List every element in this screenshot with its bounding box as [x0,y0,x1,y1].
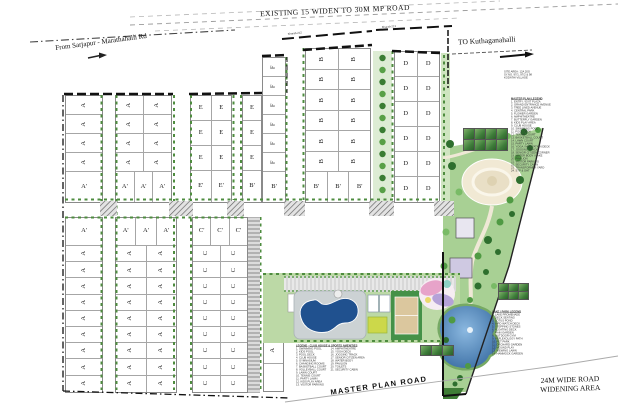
plot-label: A [154,122,161,127]
plot-label: B' [335,184,341,191]
plot-cell: D [395,177,418,202]
plot-label: C [203,349,210,353]
plot-cell: A [66,246,102,261]
plot-label: A [126,141,133,146]
plot-cell: C [193,359,221,374]
plot-cell: B [306,131,339,151]
plot-cell: C [221,359,248,374]
plot-label: F [271,65,278,69]
plot-label: A [81,381,88,386]
plot-cell: B [339,111,371,131]
plot-cell: C' [193,218,211,245]
block-a-amenity-edge: AA [263,285,284,392]
plot-label: E [219,155,223,162]
plot-label: A [81,160,88,165]
plot-cell: A [116,343,147,358]
plot-cell: F [263,153,285,171]
plot-label: B' [314,184,320,191]
block-b: BBBBBBBBBBBBB'B'B' [305,48,371,203]
plot-label: A' [163,228,169,235]
plot-cell: A [66,376,102,392]
plot-cell: F [263,77,285,95]
plot-label: A [154,103,161,108]
plot-label: D [426,86,431,93]
plot-label: A [158,316,165,321]
plot-cell: A [144,134,171,152]
plot-cell: B [339,90,371,110]
plot-label: C' [236,228,242,235]
plot-label: A [127,316,134,321]
plot-label: D [426,61,431,68]
plot-label: C [231,365,238,369]
landscape-photo-thumb [496,139,508,151]
site-notes: SITE AREA: 12A 20GSY.NO. 97/1, 97/2 & 98… [504,70,597,100]
plot-label: E [199,105,203,112]
plot-label: A [154,160,161,165]
plot-label: F [271,103,278,107]
plot-label: E [250,155,254,162]
plot-cell: A [116,262,147,277]
plot-cell: A [147,327,177,342]
plot-cell: B [306,70,339,90]
plot-cell: B [339,70,371,90]
plot-cell: D [395,102,418,126]
plot-label: A [81,251,88,256]
plot-cell: F [263,58,285,76]
plot-cell: A' [157,218,176,245]
plot-label: A [158,284,165,289]
plot-cell: C [193,262,221,277]
plot-cell [264,286,283,311]
plot-cell: A [147,246,177,261]
plot-label: A [81,141,88,146]
block-a-north: AAAAAAAAA'A'A' [115,95,172,203]
plot-cell: E [191,121,212,145]
plot-cell: A [116,153,144,171]
plot-label: A' [143,228,149,235]
plot-cell: A' [116,218,136,245]
plot-cell: C [193,343,221,358]
plot-cell: D [418,102,440,126]
plot-cell: C [193,311,221,326]
plot-cell: B' [349,172,370,202]
plot-label: C [231,300,238,304]
plot-label: A [127,365,134,370]
plot-cell: C' [230,218,247,245]
plot-label: A [270,348,277,353]
plot-label: C [203,300,210,304]
plot-cell: B' [263,172,285,202]
legend-landscape-bottomright: LAKE / PARK LEGEND1. LAKE PROMENADE2. DE… [492,310,595,404]
plot-cell: C [193,278,221,293]
plot-label: A [81,365,88,370]
plot-label: C [231,381,238,385]
block-e-east: EEEB' [242,95,262,203]
plot-cell: A [147,343,177,358]
plot-cell: A [66,343,102,358]
plot-cell: A [66,359,102,374]
plot-label: C [231,251,238,255]
plot-label: B [351,139,358,143]
plot-label: D [403,186,408,193]
plot-label: C' [217,228,223,235]
plot-cell: A' [136,218,156,245]
plot-cell: E' [191,171,212,202]
plot-label: D [403,61,408,68]
plot-cell: E [243,96,261,120]
plot-label: A [127,284,134,289]
plot-label: A [158,381,165,386]
plot-cell: A' [116,172,135,202]
plot-cell: F [263,115,285,133]
plot-cell: A' [135,172,154,202]
plot-cell: B' [328,172,350,202]
legend-item: 21. SECURITY CABIN [331,368,365,371]
plot-cell: A [147,295,177,310]
plot-label: A [81,300,88,305]
legend-item: 24. STP & OHT [511,169,551,172]
plot-cell: A [147,278,177,293]
plot-label: A [126,103,133,108]
plot-label: B [319,77,326,81]
plot-label: A [81,284,88,289]
legend-item: 14. HAMMOCK GARDEN [492,352,523,355]
plot-cell: A [116,376,147,392]
plot-label: A [81,267,88,272]
plot-cell: B [339,131,371,151]
plot-label: E [250,105,254,112]
plot-cell: A [116,96,144,114]
plot-label: A [127,348,134,353]
plot-cell: D [395,52,418,76]
plot-cell: B' [306,172,328,202]
plot-cell: D [418,77,440,101]
plot-label: A [158,300,165,305]
plot-label: C' [199,228,205,235]
plot-label: A [127,300,134,305]
plot-label: C [203,332,210,336]
plot-cell: A [66,311,102,326]
plot-cell: A [147,359,177,374]
plot-cell: C [221,262,248,277]
plot-label: C [231,316,238,320]
plot-cell: A' [153,172,171,202]
plot-cell: A' [66,172,102,202]
plot-label: F [271,141,278,145]
legend-item: 13. VISITOR PARKING [296,383,326,386]
plot-cell: F [263,96,285,114]
plot-label: B [319,57,326,61]
plot-label: A [127,267,134,272]
plot-cell: C [221,327,248,342]
plot-label: C [231,268,238,272]
plot-label: A' [141,184,147,191]
block-d: DDDDDDDDDDDD [394,51,440,203]
plot-label: F [271,160,278,164]
plot-label: B [319,98,326,102]
plot-label: A [158,348,165,353]
plot-label: D [403,111,408,118]
plot-cell: B' [243,171,261,202]
block-a-south: A'A'A'AAAAAAAAAAAAAAAAAA [115,217,177,393]
plot-label: D [403,161,408,168]
plot-label: C [203,381,210,385]
block-c: C'C'C'CCCCCCCCCCCCCCCCCC [192,217,248,393]
plot-label: A [158,365,165,370]
plot-label: C [203,316,210,320]
plot-cell [264,364,283,391]
plot-cell: E [212,146,232,170]
plot-label: D [426,186,431,193]
plot-label: B [351,118,358,122]
plot-cell: D [418,52,440,76]
plot-label: C [231,349,238,353]
block-a-northwest: AAAAA' [65,95,103,203]
plot-cell: A [116,246,147,261]
plot-label: B' [357,184,363,191]
plot-cell: A' [66,218,102,245]
plot-label: B [351,77,358,81]
plot-label: A' [123,228,129,235]
plot-cell: A [66,327,102,342]
plot-cell: A [116,327,147,342]
plot-label: A [81,348,88,353]
plot-label: B [319,139,326,143]
master-plan-drawing: AAAAA'AAAAAAAAA'A'A'EEEEEEE'E'EEEB'FFFFF… [0,0,618,404]
plot-label: B [351,57,358,61]
plot-label: C [231,284,238,288]
plot-cell: B [306,111,339,131]
plot-cell: A [116,115,144,133]
plot-cell: C [221,343,248,358]
plot-label: E [250,130,254,137]
plot-cell: B [306,152,339,172]
landscape-photo-thumb [442,345,454,356]
plot-label: A [127,251,134,256]
block-e-west: EEEEEEE'E' [190,95,232,203]
plot-cell: C [193,376,221,392]
plot-label: A' [81,184,87,191]
plot-cell: C [221,311,248,326]
plot-cell: D [395,152,418,176]
plot-cell: B [306,90,339,110]
block-f: FFFFFFB' [262,57,286,203]
plot-label: E [219,130,223,137]
plot-cell: A [66,153,102,171]
plot-label: A [127,332,134,337]
plot-cell: F [263,134,285,152]
plot-label: D [403,86,408,93]
plot-label: C [203,251,210,255]
plot-cell: B [306,49,339,69]
plot-cell: A [66,134,102,152]
plot-label: C [203,268,210,272]
plot-label: E' [198,183,203,190]
plot-label: B [319,118,326,122]
plot-label: B' [249,183,255,190]
landscape-photo-thumb [518,291,529,300]
plot-cell: D [418,152,440,176]
plot-label: D [426,136,431,143]
plot-cell: A [147,262,177,277]
plot-label: A [81,332,88,337]
plot-label: C [203,284,210,288]
plot-cell: D [395,127,418,151]
plot-cell: E [212,96,232,120]
plot-label: D [403,136,408,143]
site-note-line: KODATHI VILLAGE [504,76,604,79]
plot-label: A [158,251,165,256]
plot-cell: A [144,153,171,171]
plot-label: A [126,160,133,165]
plot-cell: D [418,177,440,202]
plot-label: B [319,159,326,163]
plot-label: E' [219,183,224,190]
plot-label: B [351,98,358,102]
plot-cell: E [243,146,261,170]
legend-amenities-center: LEGEND - CLUB HOUSE & SPORTS AMENITIES1.… [296,344,525,404]
plot-label: A [154,141,161,146]
plot-cell: A [144,115,171,133]
plot-cell: A [147,311,177,326]
plot-cell: A [144,96,171,114]
plot-cell: A [66,115,102,133]
plot-cell: C [221,246,248,261]
plot-cell: D [418,127,440,151]
plot-cell: A [66,278,102,293]
plot-cell: A [264,312,283,337]
plot-label: A [127,381,134,386]
plot-label: C [203,365,210,369]
plot-label: A' [81,228,87,235]
plot-label: E [199,155,203,162]
plot-label: A' [159,184,165,191]
plot-cell: A [116,278,147,293]
plot-label: E [199,130,203,137]
plot-cell: E [243,121,261,145]
plot-cell: C' [211,218,229,245]
plot-label: B' [271,184,277,191]
plot-cell: A [66,262,102,277]
plot-label: A [81,316,88,321]
plot-cell: E [212,121,232,145]
plot-cell: A [147,376,177,392]
plot-cell: B [339,152,371,172]
plot-label: A [126,122,133,127]
plot-label: D [426,161,431,168]
plot-label: A [158,332,165,337]
plot-label: C [231,332,238,336]
plot-cell: A [66,295,102,310]
plot-cell: C [193,327,221,342]
plot-cell: A [116,311,147,326]
plot-label: A [81,103,88,108]
plot-label: F [271,122,278,126]
block-a-southwest: A'AAAAAAAAA [65,217,103,393]
plot-cell: A [66,96,102,114]
plot-label: F [271,84,278,88]
plot-label: A [270,322,277,327]
plot-label: B [351,159,358,163]
plot-cell: E' [212,171,232,202]
plot-label: A' [122,184,128,191]
plot-label: D [426,111,431,118]
plot-cell: A [264,338,283,363]
plot-cell: A [116,359,147,374]
plot-cell: D [395,77,418,101]
plot-cell: C [221,376,248,392]
plot-cell: A [116,134,144,152]
plot-cell: C [193,295,221,310]
plot-cell: C [193,246,221,261]
plot-cell: E [191,146,212,170]
plot-cell: E [191,96,212,120]
plot-cell: A [116,295,147,310]
plot-label: A [158,267,165,272]
plot-label: E [219,105,223,112]
plot-cell: C [221,278,248,293]
plot-cell: B [339,49,371,69]
plot-label: A [81,122,88,127]
plot-cell: C [221,295,248,310]
